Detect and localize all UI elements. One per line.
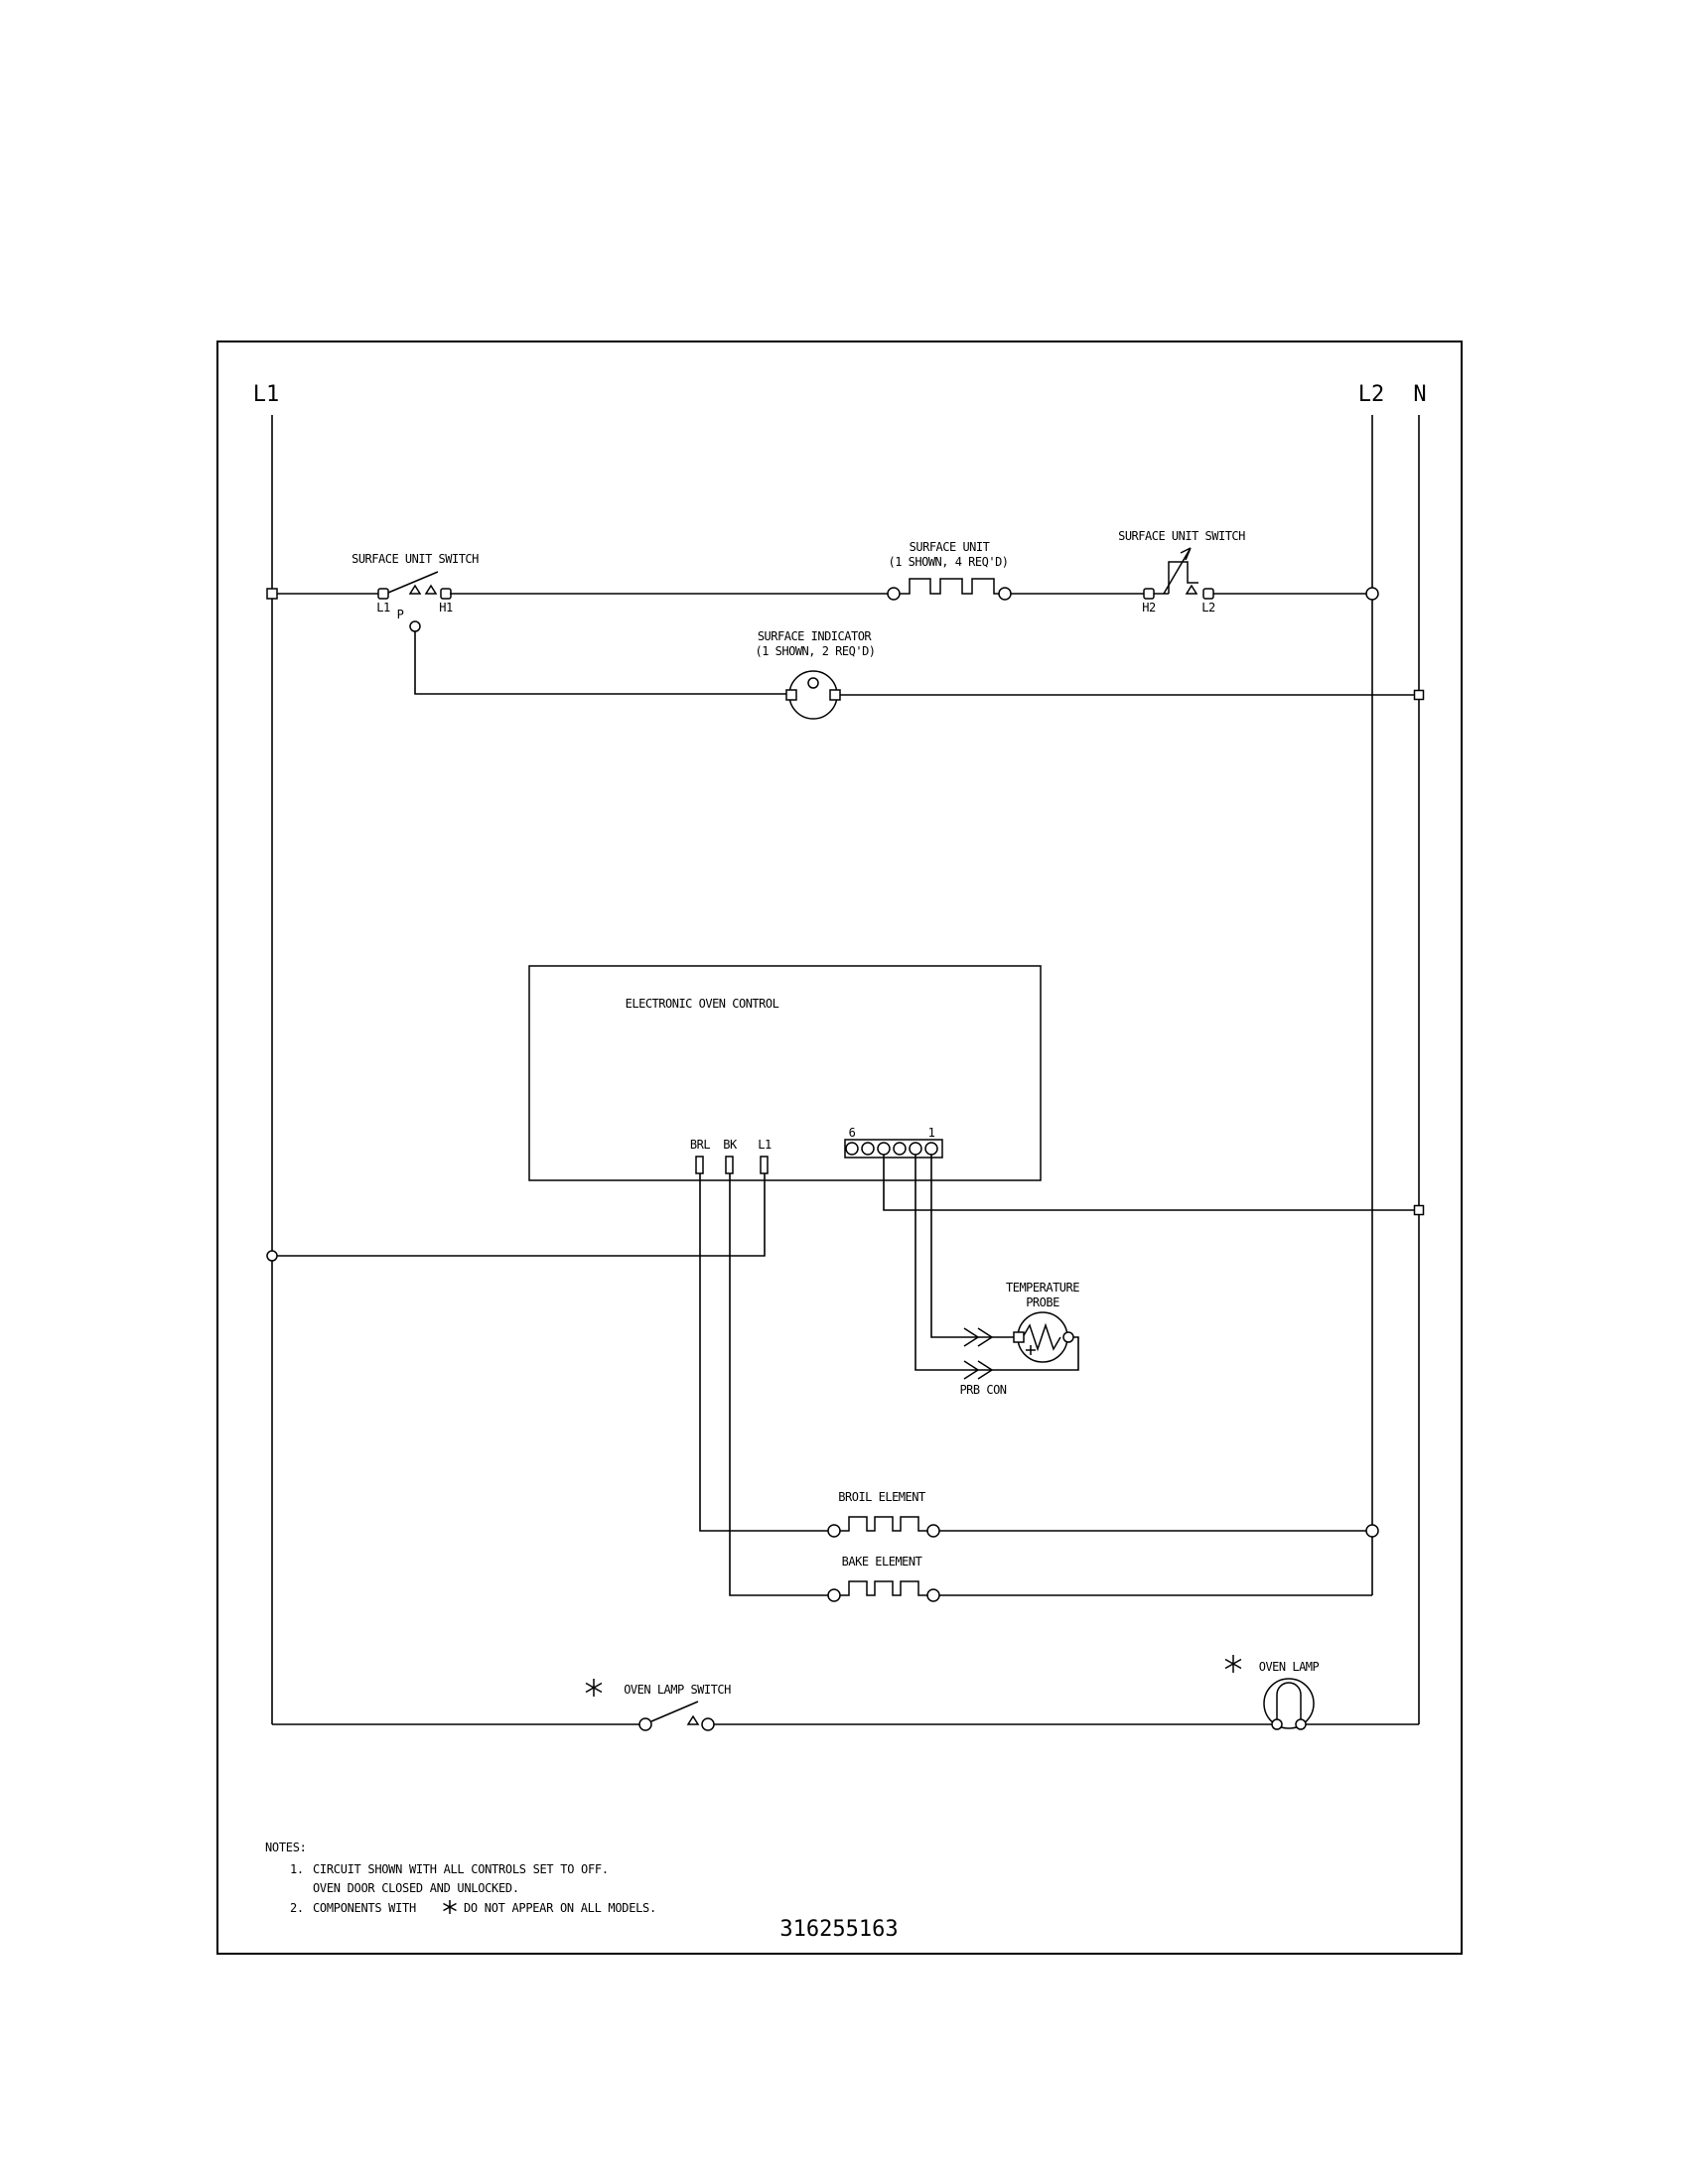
eoc-conn-pin1	[925, 1143, 937, 1155]
surface-unit-label: SURFACE UNIT	[910, 540, 990, 554]
part-number: 316255163	[779, 1917, 898, 1942]
surface-unit-switch-left: SURFACE UNIT SWITCH L1 P H1	[267, 552, 479, 631]
note-1-number: 1.	[290, 1862, 304, 1876]
terminal-h1	[441, 589, 451, 599]
note-2-text-post: DO NOT APPEAR ON ALL MODELS.	[464, 1901, 656, 1915]
eoc-conn-1-label: 1	[928, 1126, 935, 1140]
wire-eoc-pin4-to-n	[884, 1155, 1414, 1210]
temperature-probe: TEMPERATURE PROBE PRB CON	[915, 1155, 1079, 1397]
probe-conn-label: PRB CON	[959, 1383, 1006, 1397]
surface-unit-switch-right-label: SURFACE UNIT SWITCH	[1118, 529, 1245, 543]
junction-l1-rail-square	[267, 589, 277, 599]
terminal-h2	[1144, 589, 1154, 599]
surface-unit-terminal-right	[999, 588, 1011, 600]
wire-eoc-l1-to-rail	[277, 1173, 765, 1256]
lamp-terminal-left	[1272, 1719, 1282, 1729]
eoc-pin-l1	[761, 1157, 768, 1173]
bake-element-label: BAKE ELEMENT	[842, 1555, 922, 1569]
rail-label-l2: L2	[1358, 382, 1385, 407]
indicator-terminal-left	[786, 690, 796, 700]
broil-terminal-left	[828, 1525, 840, 1537]
infinite-switch-arrow-icon	[1164, 548, 1191, 594]
broil-element: BROIL ELEMENT	[700, 1173, 1378, 1537]
terminal-l2-label: L2	[1201, 601, 1215, 614]
eoc-pin-bk	[726, 1157, 733, 1173]
bake-terminal-right	[927, 1589, 939, 1601]
note-1-line1: CIRCUIT SHOWN WITH ALL CONTROLS SET TO O…	[313, 1862, 609, 1876]
eoc-title: ELECTRONIC OVEN CONTROL	[626, 997, 779, 1011]
probe-label-line2: PROBE	[1026, 1296, 1059, 1309]
lamp-switch-contact-left	[639, 1718, 651, 1730]
eoc-conn-pin4	[878, 1143, 890, 1155]
eoc-conn-pin6	[846, 1143, 858, 1155]
terminal-h1-label: H1	[439, 601, 453, 614]
surface-unit-terminal-left	[888, 588, 900, 600]
junction-n-rail-square	[1415, 691, 1424, 700]
wire-bk-to-bake	[730, 1173, 828, 1595]
wire-pilot-to-indicator	[415, 631, 786, 694]
eoc-pin-brl-label: BRL	[690, 1138, 710, 1152]
probe-plus-mark-icon	[1026, 1345, 1036, 1355]
oven-lamp: OVEN LAMP	[1225, 1655, 1320, 1729]
broil-element-label: BROIL ELEMENT	[838, 1490, 925, 1504]
indicator-terminal-right	[830, 690, 840, 700]
surface-indicator-label: SURFACE INDICATOR	[758, 629, 873, 643]
probe-resistor-icon	[1023, 1325, 1060, 1349]
eoc-conn-6-label: 6	[849, 1126, 856, 1140]
indicator-terminal-top	[808, 678, 818, 688]
rail-label-l1: L1	[253, 382, 280, 407]
note-2-text-pre: COMPONENTS WITH	[313, 1901, 416, 1915]
rail-label-n: N	[1413, 382, 1426, 407]
broil-resistor-icon	[840, 1517, 927, 1531]
asterisk-icon	[444, 1900, 457, 1914]
notes-heading: NOTES:	[265, 1841, 307, 1854]
junction-l2-rail-circle	[1366, 1525, 1378, 1537]
eoc-pin-brl	[696, 1157, 703, 1173]
lamp-terminal-right	[1296, 1719, 1306, 1729]
eoc-conn-pin5	[862, 1143, 874, 1155]
terminal-l2	[1203, 589, 1213, 599]
junction-n-rail-square	[1415, 1206, 1424, 1215]
wiring-diagram: L1 L2 N SURFACE UNIT SWITCH L1 P H1 SURF…	[0, 0, 1688, 2184]
note-1-line2: OVEN DOOR CLOSED AND UNLOCKED.	[313, 1881, 519, 1895]
oven-lamp-switch-label: OVEN LAMP SWITCH	[624, 1683, 731, 1697]
lamp-switch-contact-right	[702, 1718, 714, 1730]
surface-unit-switch-right: SURFACE UNIT SWITCH H2 L2	[1118, 529, 1245, 614]
eoc-box	[529, 966, 1041, 1180]
terminal-l1-label: L1	[376, 601, 390, 614]
eoc-conn-pin3	[894, 1143, 906, 1155]
bake-resistor-icon	[840, 1581, 927, 1595]
junction-l1-rail-circle	[267, 1251, 277, 1261]
diagram-border	[217, 341, 1462, 1954]
surface-unit-switch-left-label: SURFACE UNIT SWITCH	[352, 552, 479, 566]
eoc-pin-l1-label: L1	[758, 1138, 772, 1152]
contact-p-triangle-icon	[410, 586, 420, 594]
broil-terminal-right	[927, 1525, 939, 1537]
surface-unit-resistor-icon	[900, 579, 999, 594]
notes-block: NOTES: 1. CIRCUIT SHOWN WITH ALL CONTROL…	[265, 1841, 656, 1915]
electronic-oven-control: ELECTRONIC OVEN CONTROL BRL BK L1 6 1	[529, 966, 1041, 1180]
probe-label-line1: TEMPERATURE	[1006, 1281, 1079, 1295]
surface-unit-qty-label: (1 SHOWN, 4 REQ'D)	[888, 555, 1008, 569]
probe-terminal-left	[1014, 1332, 1024, 1342]
bake-terminal-left	[828, 1589, 840, 1601]
wire-eoc-pin1-to-probe	[931, 1155, 1014, 1337]
bake-element: BAKE ELEMENT	[730, 1173, 1372, 1601]
schematic-sheet: L1 L2 N SURFACE UNIT SWITCH L1 P H1 SURF…	[0, 0, 1688, 2184]
lamp-filament-icon	[1277, 1683, 1301, 1719]
surface-unit: SURFACE UNIT (1 SHOWN, 4 REQ'D)	[888, 540, 1011, 600]
note-2-number: 2.	[290, 1901, 304, 1915]
terminal-l1	[378, 589, 388, 599]
terminal-h2-label: H2	[1142, 601, 1156, 614]
oven-lamp-label: OVEN LAMP	[1259, 1660, 1320, 1674]
contact-triangle-icon	[1187, 586, 1196, 594]
asterisk-icon	[586, 1679, 602, 1697]
pilot-tap-connector	[410, 621, 420, 631]
junction-l2-rail-circle	[1366, 588, 1378, 600]
eoc-pin-bk-label: BK	[723, 1138, 738, 1152]
asterisk-icon	[1225, 1655, 1241, 1673]
eoc-conn-pin2	[910, 1143, 921, 1155]
oven-lamp-switch: OVEN LAMP SWITCH	[272, 1679, 731, 1730]
terminal-p-label: P	[397, 608, 404, 621]
surface-indicator: SURFACE INDICATOR (1 SHOWN, 2 REQ'D)	[415, 629, 1424, 719]
lamp-bulb-icon	[1264, 1679, 1314, 1728]
contact-triangle-icon	[426, 586, 436, 594]
probe-terminal-right	[1063, 1332, 1073, 1342]
contact-triangle-icon	[688, 1716, 698, 1724]
surface-indicator-qty-label: (1 SHOWN, 2 REQ'D)	[755, 644, 875, 658]
